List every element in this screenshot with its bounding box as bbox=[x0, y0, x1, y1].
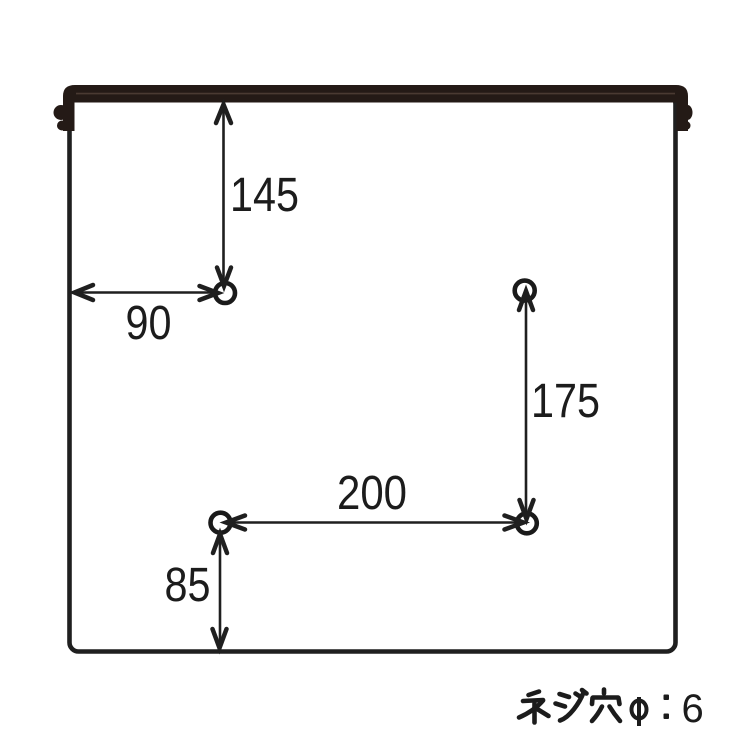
svg-text:6: 6 bbox=[682, 687, 704, 731]
svg-text:85: 85 bbox=[165, 559, 211, 612]
svg-text:145: 145 bbox=[230, 169, 299, 222]
svg-text:200: 200 bbox=[337, 467, 407, 520]
svg-text:175: 175 bbox=[531, 375, 600, 428]
svg-text:90: 90 bbox=[126, 297, 172, 350]
